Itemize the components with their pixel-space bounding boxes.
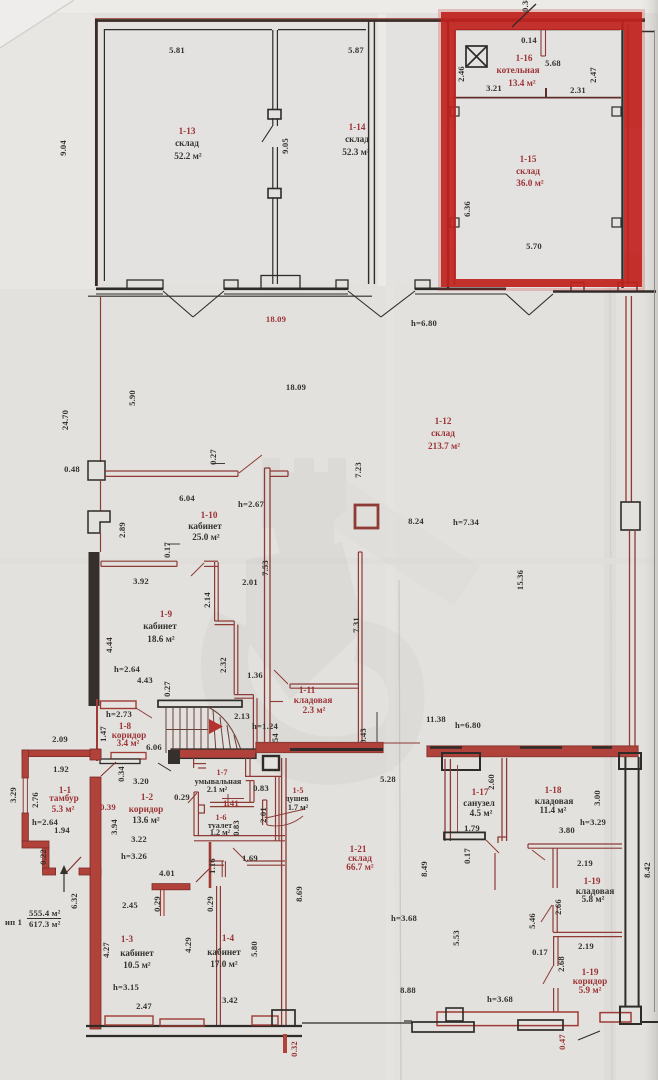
svg-text:1.2 м²: 1.2 м² — [210, 828, 231, 837]
svg-text:25.0 м²: 25.0 м² — [192, 532, 220, 542]
svg-text:2.1 м²: 2.1 м² — [207, 785, 228, 794]
svg-text:2.09: 2.09 — [52, 734, 68, 744]
svg-text:6.06: 6.06 — [146, 742, 162, 752]
svg-text:0.29: 0.29 — [174, 792, 190, 802]
svg-text:0.48: 0.48 — [64, 464, 80, 474]
svg-text:3.80: 3.80 — [559, 825, 575, 835]
svg-text:9.04: 9.04 — [58, 140, 68, 156]
svg-text:6.32: 6.32 — [69, 893, 79, 909]
svg-text:1-12: 1-12 — [435, 416, 452, 426]
svg-text:7.53: 7.53 — [260, 560, 270, 576]
svg-text:0.27: 0.27 — [208, 449, 218, 465]
svg-text:1-13: 1-13 — [179, 126, 196, 136]
svg-text:2.45: 2.45 — [122, 900, 138, 910]
svg-text:1-7: 1-7 — [217, 768, 228, 777]
svg-text:17.0 м²: 17.0 м² — [210, 959, 238, 969]
svg-text:h=1.24: h=1.24 — [252, 721, 278, 731]
svg-text:h=3.68: h=3.68 — [391, 913, 417, 923]
svg-text:2.31: 2.31 — [570, 85, 586, 95]
svg-text:3.00: 3.00 — [592, 790, 602, 806]
svg-text:1-2: 1-2 — [141, 792, 154, 802]
svg-text:санузел: санузел — [463, 798, 495, 808]
svg-text:2.3 м²: 2.3 м² — [303, 705, 326, 715]
svg-text:0.43: 0.43 — [358, 728, 368, 744]
svg-text:2.32: 2.32 — [218, 657, 228, 673]
svg-text:5.53: 5.53 — [451, 930, 461, 946]
svg-text:1-3: 1-3 — [121, 934, 134, 944]
svg-text:3.22: 3.22 — [131, 834, 147, 844]
svg-text:h=3.68: h=3.68 — [487, 994, 513, 1004]
svg-text:2.01: 2.01 — [242, 577, 258, 587]
svg-text:5.68: 5.68 — [545, 58, 561, 68]
svg-text:8.24: 8.24 — [408, 516, 424, 526]
svg-text:0.29: 0.29 — [152, 896, 162, 912]
svg-text:2.19: 2.19 — [577, 858, 593, 868]
svg-text:617.3 м²: 617.3 м² — [29, 919, 61, 929]
svg-text:0.47: 0.47 — [557, 1034, 567, 1050]
svg-text:2.47: 2.47 — [136, 1001, 152, 1011]
svg-text:5.9 м²: 5.9 м² — [579, 985, 602, 995]
svg-text:1-18: 1-18 — [545, 785, 562, 795]
svg-text:9.05: 9.05 — [280, 138, 290, 154]
svg-text:3.42: 3.42 — [222, 995, 238, 1005]
svg-text:18.6 м²: 18.6 м² — [147, 634, 175, 644]
svg-text:213.7 м²: 213.7 м² — [428, 441, 460, 451]
svg-text:0.39: 0.39 — [100, 802, 116, 812]
svg-text:h=6.80: h=6.80 — [411, 318, 437, 328]
svg-text:5.80: 5.80 — [249, 941, 259, 957]
svg-text:4.44: 4.44 — [104, 637, 114, 653]
svg-text:52.2 м²: 52.2 м² — [174, 151, 202, 161]
svg-text:h=2.73: h=2.73 — [106, 709, 132, 719]
svg-text:1.7 м²: 1.7 м² — [288, 803, 309, 812]
svg-text:0.34: 0.34 — [116, 766, 126, 782]
svg-text:7.23: 7.23 — [353, 462, 363, 478]
svg-text:1-11: 1-11 — [299, 685, 316, 695]
svg-text:1-19: 1-19 — [584, 876, 601, 886]
svg-text:кабинет: кабинет — [143, 621, 177, 631]
svg-text:ип 1: ип 1 — [5, 917, 22, 927]
svg-text:h=2.64: h=2.64 — [114, 664, 140, 674]
svg-text:18.09: 18.09 — [266, 314, 286, 324]
svg-text:2.14: 2.14 — [202, 592, 212, 608]
svg-text:8.49: 8.49 — [419, 861, 429, 877]
svg-text:склад: склад — [516, 166, 540, 176]
svg-text:1.79: 1.79 — [464, 823, 480, 833]
svg-text:1-10: 1-10 — [201, 510, 218, 520]
svg-text:13.6 м²: 13.6 м² — [132, 815, 160, 825]
svg-text:0.27: 0.27 — [162, 681, 172, 697]
svg-text:h=2.67: h=2.67 — [238, 499, 264, 509]
svg-text:h=3.15: h=3.15 — [113, 982, 139, 992]
svg-text:1.16: 1.16 — [207, 858, 217, 874]
svg-text:2.19: 2.19 — [578, 941, 594, 951]
svg-text:2.89: 2.89 — [117, 522, 127, 538]
svg-text:кабинет: кабинет — [207, 947, 241, 957]
svg-text:5.87: 5.87 — [348, 45, 364, 55]
svg-text:66.7 м²: 66.7 м² — [346, 862, 374, 872]
svg-text:11.4 м²: 11.4 м² — [540, 805, 567, 815]
svg-text:1.92: 1.92 — [53, 764, 69, 774]
svg-text:коридор: коридор — [129, 804, 164, 814]
svg-text:2.46: 2.46 — [456, 66, 466, 82]
svg-text:h=6.80: h=6.80 — [455, 720, 481, 730]
svg-text:5.46: 5.46 — [527, 913, 537, 929]
svg-text:1-17: 1-17 — [472, 787, 489, 797]
svg-text:1-15: 1-15 — [520, 154, 537, 164]
svg-text:1.36: 1.36 — [247, 670, 263, 680]
svg-text:8.88: 8.88 — [400, 985, 416, 995]
svg-text:8.42: 8.42 — [642, 862, 652, 878]
svg-text:0.17: 0.17 — [532, 947, 548, 957]
svg-text:0.83: 0.83 — [253, 783, 269, 793]
svg-text:2.76: 2.76 — [30, 792, 40, 808]
svg-text:1-9: 1-9 — [160, 609, 173, 619]
svg-text:6.36: 6.36 — [462, 201, 472, 217]
svg-text:5.3 м²: 5.3 м² — [52, 804, 75, 814]
svg-text:котельная: котельная — [496, 65, 539, 75]
svg-text:5.70: 5.70 — [526, 241, 542, 251]
svg-text:0.14: 0.14 — [521, 35, 537, 45]
svg-text:0.32: 0.32 — [289, 1041, 299, 1057]
svg-text:душев: душев — [285, 794, 309, 803]
svg-text:1-14: 1-14 — [349, 122, 366, 132]
svg-text:5.28: 5.28 — [380, 774, 396, 784]
svg-text:7.31: 7.31 — [351, 617, 361, 633]
svg-text:10.5 м²: 10.5 м² — [123, 960, 151, 970]
svg-text:0.29: 0.29 — [205, 896, 215, 912]
svg-text:склад: склад — [431, 428, 455, 438]
svg-text:4.27: 4.27 — [101, 942, 111, 958]
svg-text:4.01: 4.01 — [159, 868, 175, 878]
svg-text:52.3 м²: 52.3 м² — [342, 147, 370, 157]
svg-text:555.4 м²: 555.4 м² — [29, 908, 61, 918]
svg-text:склад: склад — [175, 138, 199, 148]
svg-text:4.43: 4.43 — [137, 675, 153, 685]
svg-text:h=7.34: h=7.34 — [453, 517, 479, 527]
svg-text:3.21: 3.21 — [486, 83, 502, 93]
svg-text:3.94: 3.94 — [109, 819, 119, 835]
svg-text:h=3.26: h=3.26 — [121, 851, 147, 861]
svg-text:1.47: 1.47 — [98, 726, 108, 742]
svg-text:8.69: 8.69 — [294, 886, 304, 902]
svg-text:кабинет: кабинет — [188, 521, 222, 531]
svg-text:тамбур: тамбур — [49, 793, 78, 803]
svg-text:5.81: 5.81 — [169, 45, 185, 55]
svg-text:24.70: 24.70 — [60, 410, 70, 430]
svg-text:3.92: 3.92 — [133, 576, 149, 586]
svg-text:2.66: 2.66 — [553, 899, 563, 915]
svg-text:11.38: 11.38 — [426, 714, 446, 724]
svg-text:1-16: 1-16 — [516, 53, 533, 63]
svg-text:3.20: 3.20 — [133, 776, 149, 786]
svg-text:1-4: 1-4 — [222, 933, 235, 943]
svg-text:3.29: 3.29 — [8, 787, 18, 803]
svg-text:6.04: 6.04 — [179, 493, 195, 503]
svg-text:1.41: 1.41 — [223, 798, 239, 808]
svg-text:4.5 м²: 4.5 м² — [470, 808, 493, 818]
svg-text:1.94: 1.94 — [54, 825, 70, 835]
svg-text:18.09: 18.09 — [286, 382, 306, 392]
svg-text:3.4 м²: 3.4 м² — [117, 738, 140, 748]
svg-text:0.83: 0.83 — [231, 820, 241, 836]
svg-text:15.36: 15.36 — [515, 569, 525, 590]
svg-text:4.29: 4.29 — [183, 937, 193, 953]
svg-text:36.0 м²: 36.0 м² — [516, 178, 544, 188]
svg-text:5.8 м²: 5.8 м² — [582, 894, 605, 904]
svg-text:1.69: 1.69 — [242, 853, 258, 863]
svg-text:2.47: 2.47 — [588, 67, 598, 83]
svg-text:13.4 м²: 13.4 м² — [508, 78, 536, 88]
svg-text:2.01: 2.01 — [258, 807, 268, 823]
svg-text:h=3.29: h=3.29 — [580, 817, 606, 827]
svg-text:0.17: 0.17 — [462, 848, 472, 864]
svg-text:кладовая: кладовая — [294, 695, 333, 705]
svg-text:0.38: 0.38 — [520, 0, 530, 12]
svg-text:склад: склад — [345, 134, 369, 144]
svg-text:5.90: 5.90 — [127, 390, 137, 406]
svg-text:0.22: 0.22 — [38, 849, 48, 865]
svg-text:2.13: 2.13 — [234, 711, 250, 721]
svg-text:кабинет: кабинет — [120, 948, 154, 958]
